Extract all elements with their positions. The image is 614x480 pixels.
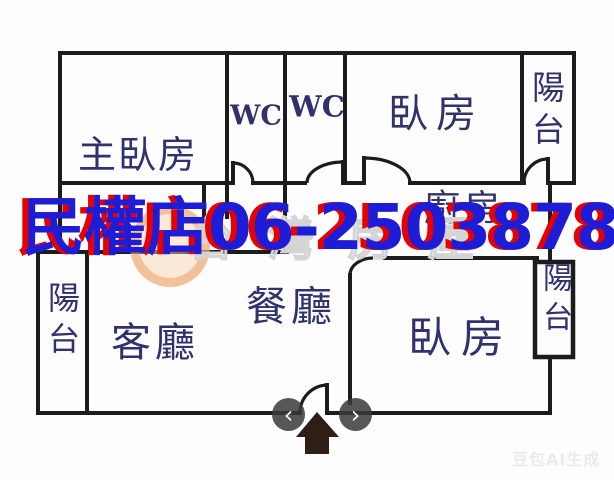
room-label-wc-left: WC — [230, 103, 282, 130]
room-label-bedroom-top: 臥房 — [388, 94, 484, 134]
room-label-balcony-left: 陽台 — [46, 281, 78, 363]
room-label-balcony-right: 陽台 — [539, 262, 569, 340]
carousel-prev-button[interactable]: ‹ — [272, 398, 305, 431]
room-label-wc-right: WC — [289, 93, 345, 122]
room-label-living: 客廳 — [111, 323, 199, 363]
room-label-master-bedroom: 主臥房 — [78, 136, 198, 174]
room-label-bedroom-bottom: 臥房 — [408, 318, 514, 361]
store-phone-overlay: 民權店06-2503878 — [22, 195, 614, 261]
carousel-next-button[interactable]: › — [339, 398, 372, 431]
room-label-balcony-top-right: 陽台 — [530, 70, 563, 154]
floorplan-listing-image: 主臥房 WC WC 臥房 陽台 廚房 餐廳 客廳 陽台 臥房 陽台 台灣房屋 民… — [0, 0, 614, 480]
room-label-dining: 餐廳 — [246, 287, 336, 328]
ai-generated-watermark: 豆包AI生成 — [512, 446, 600, 470]
